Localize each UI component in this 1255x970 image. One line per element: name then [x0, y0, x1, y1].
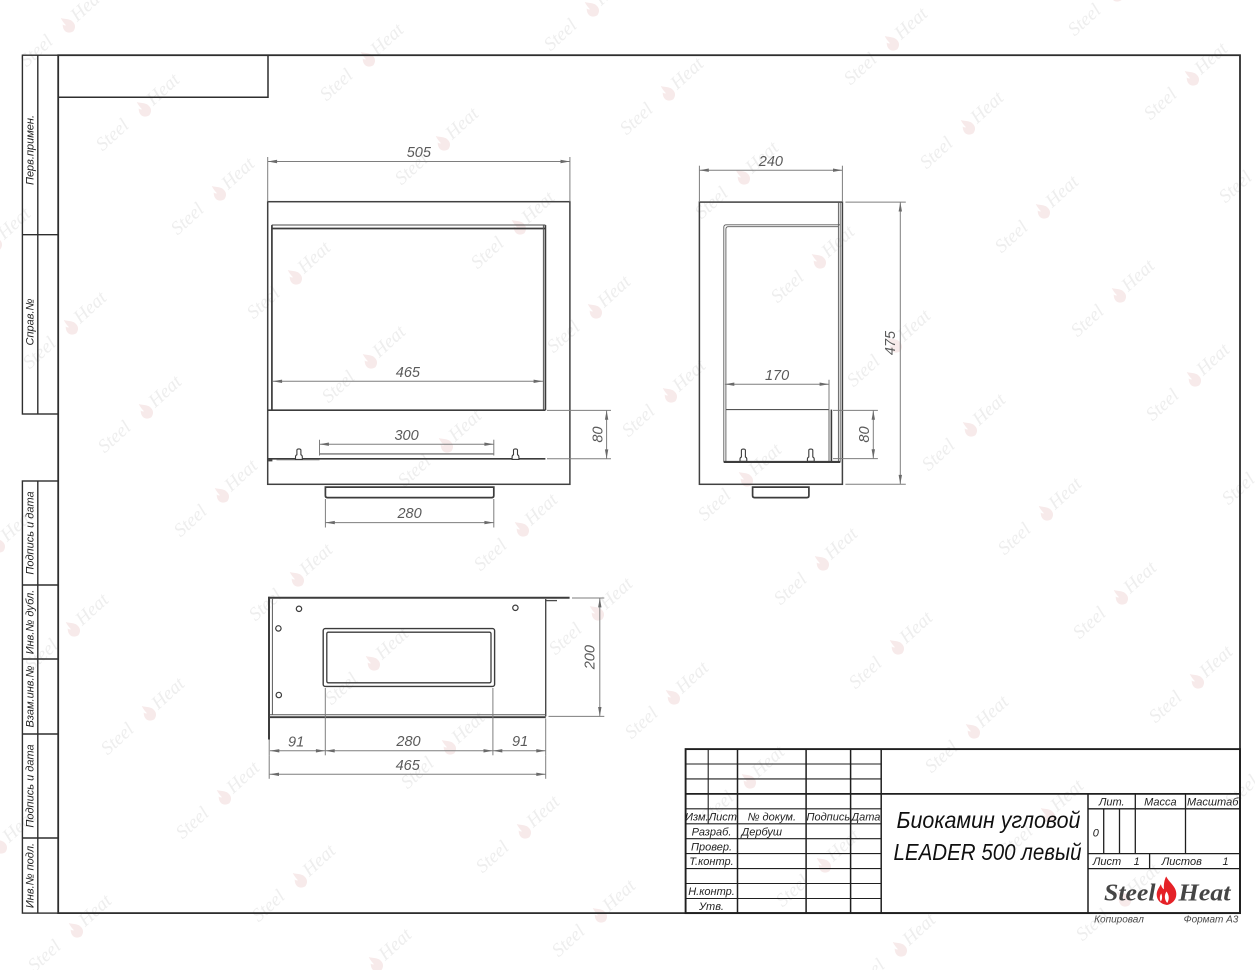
svg-text:300: 300 [394, 428, 418, 444]
svg-text:Лит.: Лит. [1098, 797, 1125, 809]
svg-text:80: 80 [857, 426, 873, 442]
svg-text:465: 465 [396, 365, 421, 381]
svg-text:Подпись и дата: Подпись и дата [25, 491, 37, 574]
svg-text:1: 1 [1223, 856, 1229, 868]
svg-text:200: 200 [583, 645, 599, 670]
svg-text:Подпись и дата: Подпись и дата [25, 744, 37, 827]
svg-text:Утв.: Утв. [698, 901, 724, 913]
svg-text:91: 91 [512, 734, 528, 750]
svg-text:Изм.: Изм. [685, 811, 708, 823]
svg-text:Взам.инв.№: Взам.инв.№ [25, 665, 37, 727]
svg-text:465: 465 [396, 758, 421, 774]
svg-text:Т.контр.: Т.контр. [689, 856, 733, 868]
svg-text:Листов: Листов [1161, 856, 1202, 868]
svg-text:Перв.примен.: Перв.примен. [25, 115, 37, 185]
svg-text:Дата: Дата [849, 811, 880, 823]
svg-text:1: 1 [1134, 856, 1140, 868]
svg-text:Лист: Лист [708, 811, 737, 823]
svg-text:Лист: Лист [1092, 856, 1121, 868]
svg-text:Подпись: Подпись [806, 811, 850, 823]
svg-text:0: 0 [1093, 828, 1100, 840]
svg-text:91: 91 [288, 735, 304, 751]
svg-text:Провер.: Провер. [691, 841, 732, 853]
svg-text:Формат А3: Формат А3 [1184, 915, 1239, 926]
svg-text:Heat: Heat [1177, 881, 1232, 907]
svg-text:Копировал: Копировал [1094, 915, 1144, 926]
svg-text:Дербуш: Дербуш [740, 826, 783, 838]
svg-text:280: 280 [395, 734, 420, 750]
svg-text:240: 240 [758, 154, 783, 170]
svg-text:Разраб.: Разраб. [692, 826, 732, 838]
svg-text:LEADER 500 левый: LEADER 500 левый [894, 839, 1082, 865]
svg-text:Масштаб: Масштаб [1187, 797, 1239, 809]
svg-text:Инв.№ дубл.: Инв.№ дубл. [25, 590, 37, 655]
svg-text:Н.контр.: Н.контр. [688, 886, 735, 898]
svg-text:Справ.№: Справ.№ [25, 298, 37, 345]
svg-text:505: 505 [407, 145, 432, 161]
svg-text:№ докум.: № докум. [748, 811, 796, 823]
svg-text:280: 280 [396, 506, 421, 522]
svg-text:Биокамин угловой: Биокамин угловой [897, 807, 1081, 833]
svg-text:Масса: Масса [1144, 797, 1177, 809]
svg-text:Steel: Steel [1104, 881, 1156, 907]
svg-text:170: 170 [765, 368, 789, 384]
svg-text:80: 80 [591, 427, 607, 443]
svg-text:Инв.№ подл.: Инв.№ подл. [25, 843, 37, 908]
svg-text:475: 475 [883, 330, 899, 355]
